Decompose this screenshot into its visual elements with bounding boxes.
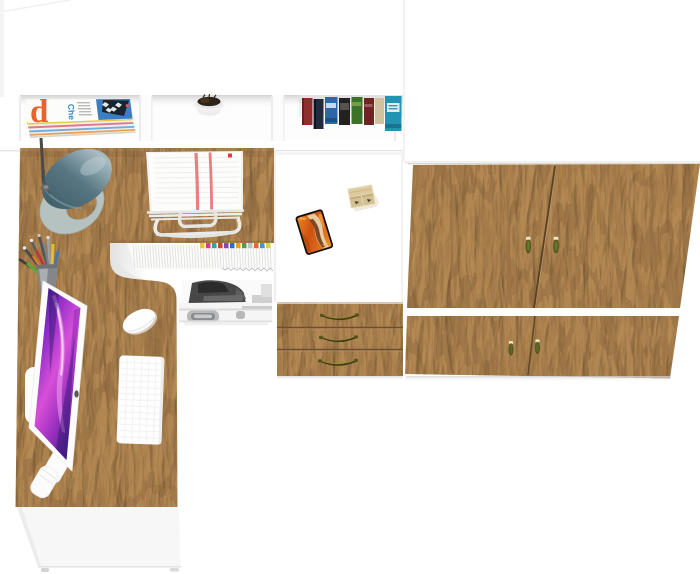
svg-text:Che: Che [66, 104, 77, 121]
svg-text:d: d [30, 94, 48, 130]
